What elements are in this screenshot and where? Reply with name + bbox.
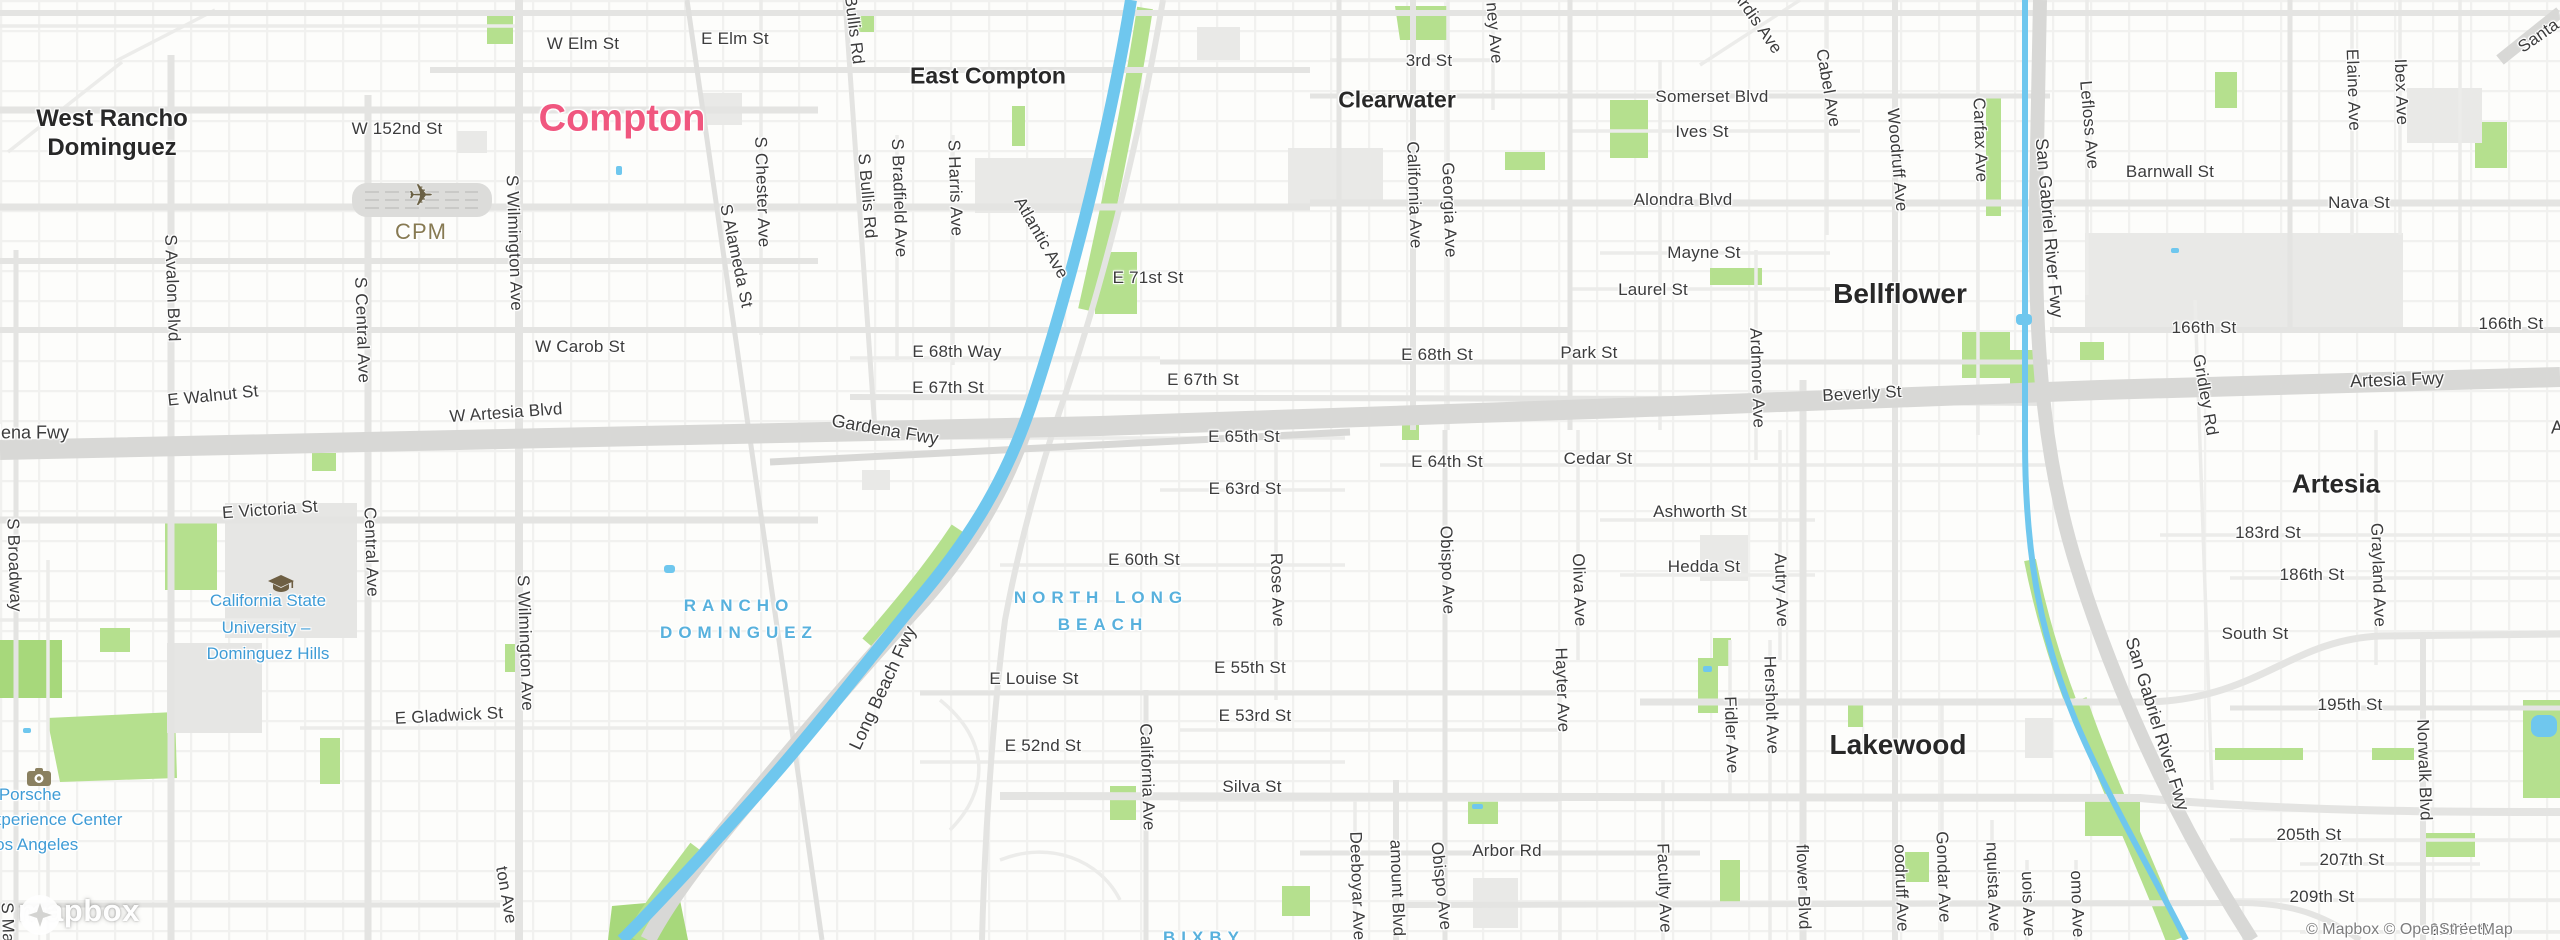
town-label: West Rancho [36, 105, 188, 133]
street-label: Faculty Ave [1652, 843, 1675, 933]
street-label: Deeboyar Ave [1345, 831, 1369, 940]
street-label: 195th St [2318, 695, 2383, 715]
street-label: 209th St [2290, 887, 2355, 907]
street-label: 186th St [2280, 565, 2345, 585]
street-label: Ashworth St [1653, 502, 1747, 522]
district-label: BIXBY [1163, 928, 1245, 940]
street-label: Nava St [2328, 193, 2390, 213]
street-label: S Chester Ave [750, 136, 774, 248]
town-label: East Compton [910, 63, 1066, 90]
street-label: E 65th St [1208, 427, 1280, 447]
street-label: 3rd St [1406, 51, 1453, 71]
street-label: W Elm St [547, 34, 619, 54]
poi-label: California State [210, 591, 326, 611]
street-label: Somerset Blvd [1655, 87, 1768, 107]
street-label: uois Ave [2017, 871, 2039, 937]
street-label: Oliva Ave [1568, 553, 1591, 627]
town-label: Dominguez [47, 134, 176, 162]
street-label: omo Ave [2066, 870, 2088, 938]
street-label: E Louise St [989, 669, 1078, 689]
town-label: Lakewood [1830, 729, 1967, 761]
poi-label: Dominguez Hills [207, 644, 330, 664]
street-label: 183rd St [2235, 523, 2301, 543]
street-label: Elaine Ave [2342, 49, 2365, 132]
street-label: S Broadway [2, 518, 25, 612]
district-label: RANCHO [684, 596, 795, 616]
street-label: S Avalon Blvd [160, 234, 184, 342]
street-label: Rose Ave [1266, 553, 1289, 628]
street-label: Park St [1560, 343, 1617, 363]
street-label: S Central Ave [350, 277, 374, 384]
street-label: flower Blvd [1792, 844, 1815, 930]
street-label: E 55th St [1214, 658, 1286, 678]
street-label: Laurel St [1618, 280, 1688, 300]
street-label: E 68th St [1401, 345, 1473, 365]
map-canvas[interactable]: ComptonWest RanchoDominguezEast ComptonC… [0, 0, 2560, 940]
street-label: E 67th St [1167, 370, 1239, 390]
street-label: W Carob St [535, 337, 625, 357]
street-label: oodruff Ave [1889, 844, 1912, 932]
street-label: Hayter Ave [1551, 647, 1574, 732]
street-label: E 53rd St [1219, 706, 1292, 726]
street-label: Obispo Ave [1435, 525, 1458, 614]
district-label: NORTH LONG [1014, 588, 1188, 608]
freeway-label: Gardena Fwy [0, 423, 69, 444]
street-label: E Elm St [701, 29, 769, 49]
poi-label: Experience Center [0, 810, 122, 830]
airplane-icon: ✈ [408, 179, 433, 214]
poi-label: Los Angeles [0, 835, 78, 855]
street-label: Carfax Ave [1969, 97, 1992, 182]
town-label: Bellflower [1833, 278, 1967, 310]
airport-label: CPM [395, 219, 447, 245]
street-label: Hersholt Ave [1759, 655, 1782, 754]
street-label: Norwalk Blvd [2412, 719, 2436, 821]
district-label: BEACH [1058, 615, 1148, 635]
street-label: Alondra Blvd [1634, 190, 1733, 210]
street-label: E 71st St [1113, 268, 1184, 288]
street-label: Gondar Ave [1931, 831, 1954, 923]
street-label: 166th St [2172, 318, 2237, 338]
freeway-label: Artesia Fwy [2551, 418, 2560, 439]
street-label: W 152nd St [352, 119, 443, 139]
street-label: Autry Ave [1770, 553, 1793, 628]
town-label: Artesia [2292, 469, 2380, 500]
attribution[interactable]: © Mapbox © OpenStreetMap [2306, 921, 2513, 939]
street-label: Georgia Ave [1437, 162, 1460, 258]
street-label: S Harris Ave [943, 139, 966, 236]
street-label: S Main St [0, 902, 19, 940]
poi-label: Porsche [0, 785, 61, 805]
mapbox-logo-icon [18, 893, 62, 937]
street-label: Cedar St [1564, 449, 1633, 469]
street-label: 205th St [2277, 825, 2342, 845]
poi-label: University – [222, 618, 311, 638]
street-label: Mayne St [1667, 243, 1740, 263]
street-label: E 63rd St [1209, 479, 1282, 499]
street-label: Arbor Rd [1472, 841, 1542, 861]
street-label: E 64th St [1411, 452, 1483, 472]
street-label: S Bradfield Ave [887, 138, 911, 258]
town-label: Clearwater [1338, 87, 1456, 114]
street-label: Central Ave [359, 507, 382, 597]
street-label: amount Blvd [1385, 839, 1408, 936]
street-label: Hedda St [1668, 557, 1740, 577]
street-label: Grayland Ave [2366, 523, 2390, 628]
street-label: 166th St [2479, 314, 2544, 334]
freeway-label: Artesia Fwy [2350, 368, 2445, 392]
street-label: Beverly St [1822, 382, 1902, 406]
street-label: 207th St [2320, 850, 2385, 870]
street-label: E 68th Way [912, 342, 1001, 362]
street-label: South St [2222, 624, 2289, 644]
street-label: California Ave [1402, 141, 1426, 249]
street-label: nquista Ave [1981, 842, 2004, 932]
street-label: Ives St [1675, 122, 1728, 142]
street-label: Ibex Ave [2390, 58, 2412, 125]
street-label: Barnwall St [2126, 162, 2214, 182]
street-label: Silva St [1222, 777, 1281, 797]
street-label: E 60th St [1108, 550, 1180, 570]
street-label: California Ave [1135, 723, 1159, 831]
street-label: Ardmore Ave [1745, 328, 1768, 429]
street-label: E 67th St [912, 378, 984, 398]
mapbox-logo[interactable]: mapbox [18, 893, 140, 929]
city-label: Compton [539, 98, 706, 141]
street-label: E 52nd St [1005, 736, 1081, 756]
street-label: Fidler Ave [1720, 696, 1743, 774]
district-label: DOMINGUEZ [660, 623, 818, 643]
